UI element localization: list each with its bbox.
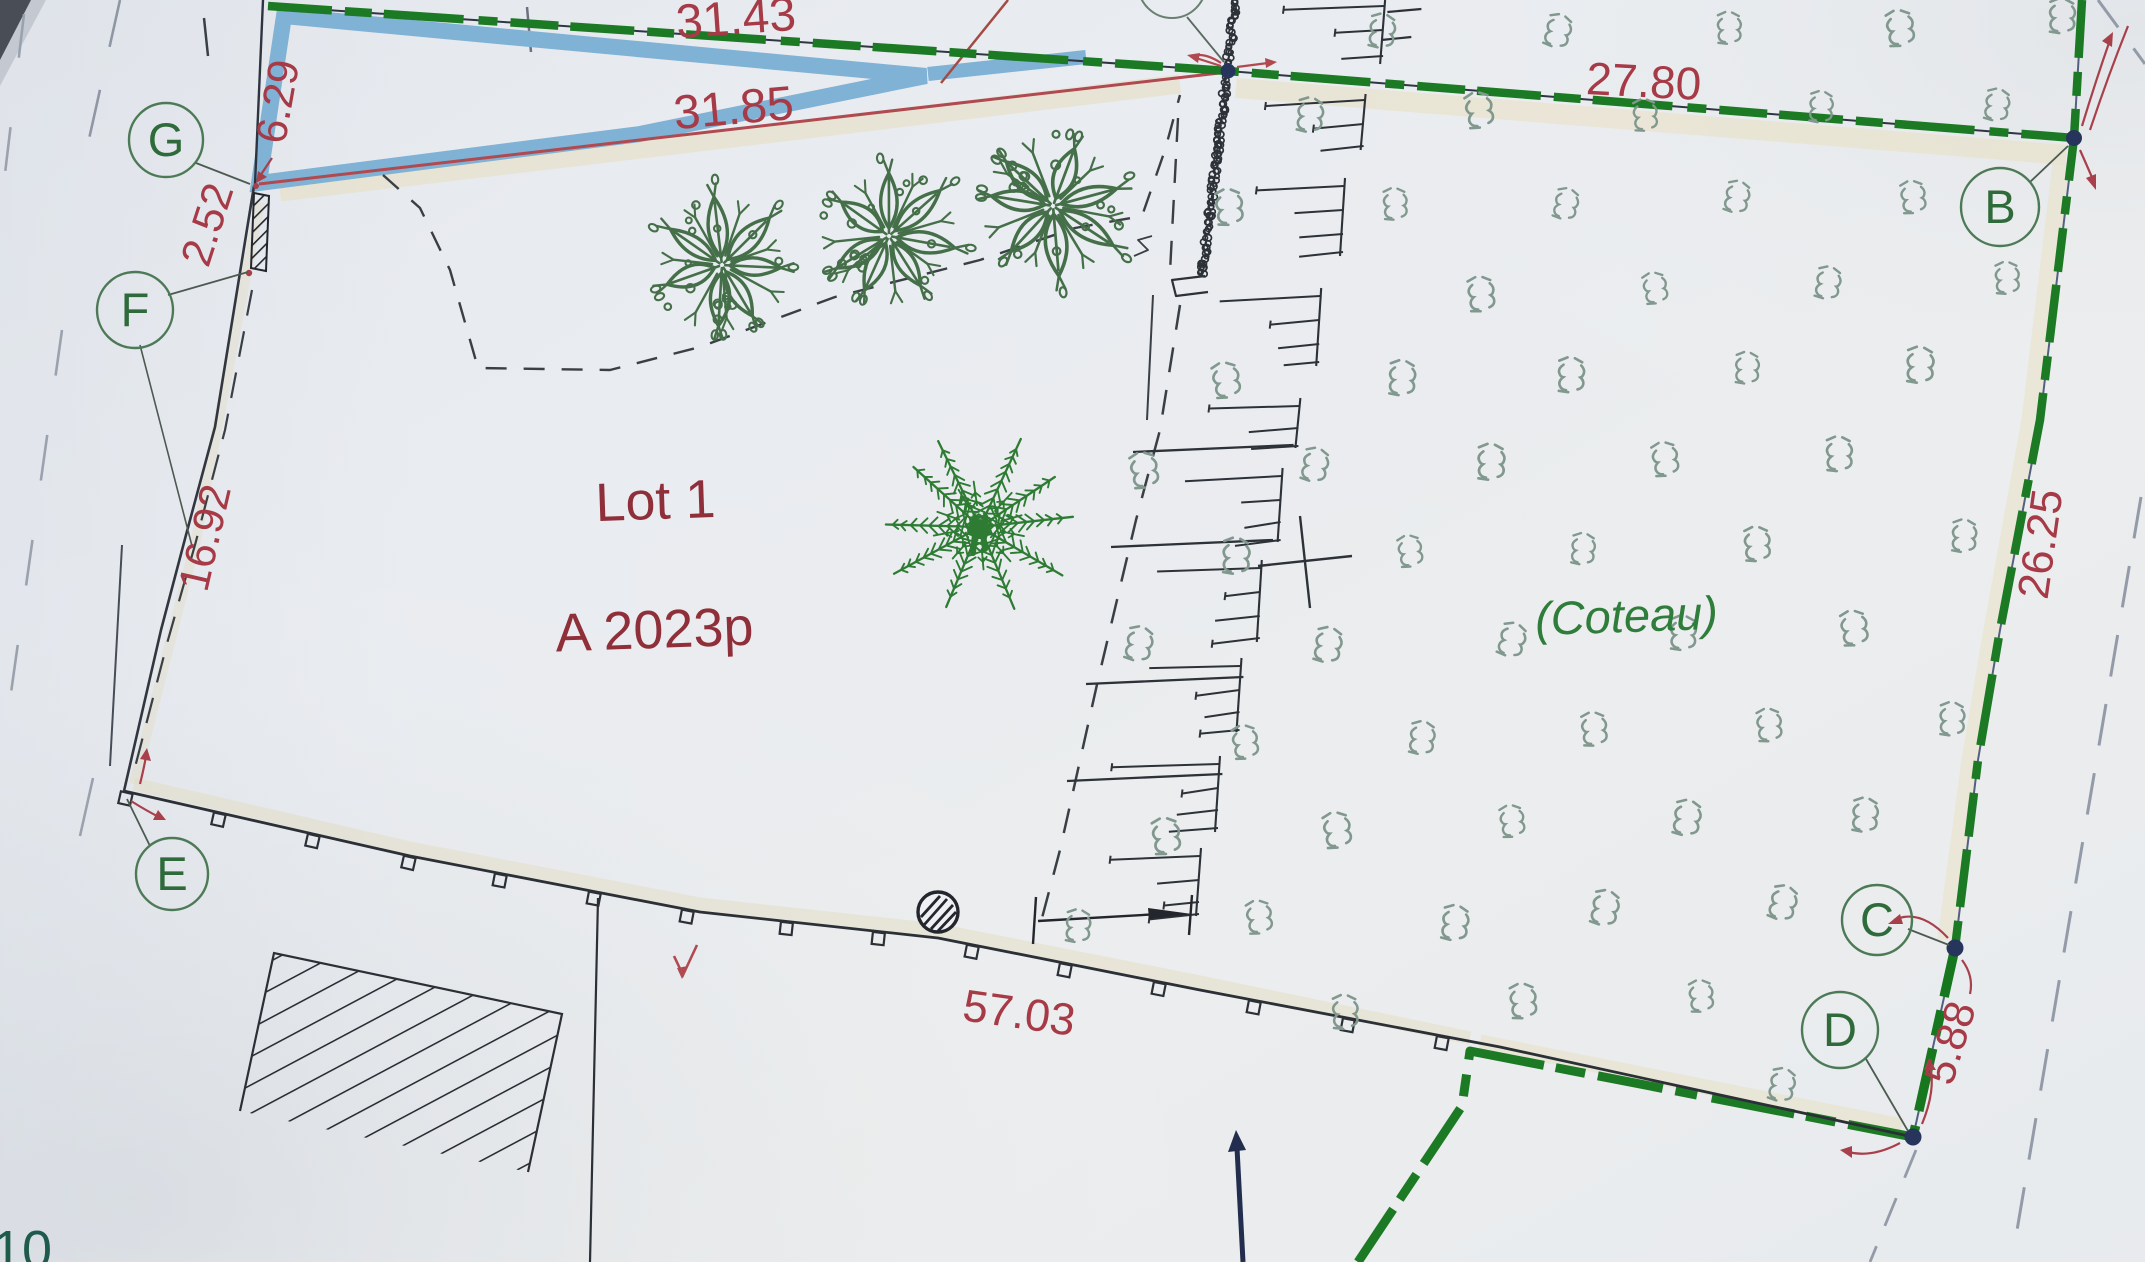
svg-text:31.43: 31.43 — [674, 0, 798, 49]
svg-text:Lot 1: Lot 1 — [594, 469, 716, 533]
svg-text:G: G — [148, 113, 185, 166]
svg-text:31.85: 31.85 — [672, 77, 796, 140]
svg-text:B: B — [1984, 180, 2015, 233]
svg-text:F: F — [121, 283, 150, 336]
svg-text:10: 10 — [0, 1220, 52, 1262]
svg-text:E: E — [156, 847, 187, 900]
svg-text:C: C — [1860, 893, 1894, 946]
svg-text:D: D — [1823, 1003, 1857, 1056]
svg-text:A 2023p: A 2023p — [554, 597, 754, 664]
svg-text:(Coteau): (Coteau) — [1534, 586, 1719, 645]
svg-text:27.80: 27.80 — [1585, 52, 1703, 110]
